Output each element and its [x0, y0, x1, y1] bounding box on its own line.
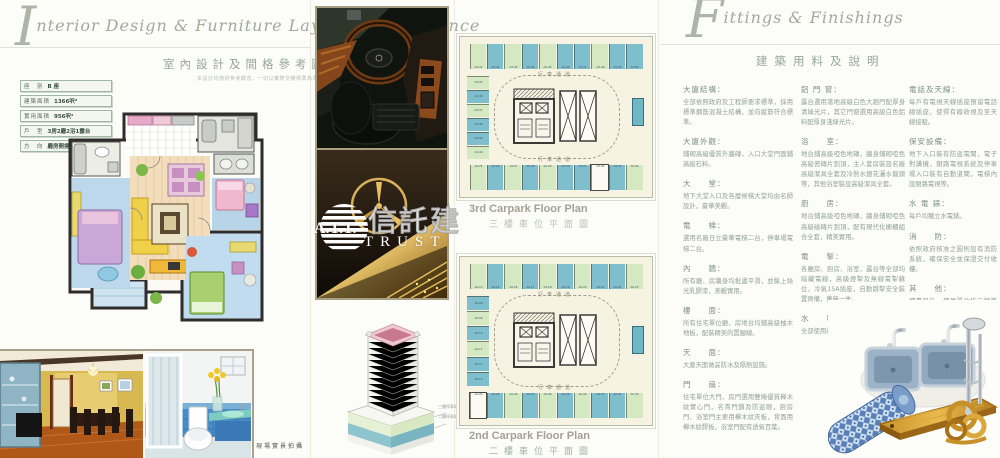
stall-label: A3-39 [474, 137, 482, 140]
car-interior-photo [317, 8, 447, 148]
stall-label: A2-12 [474, 363, 482, 366]
stall-label: A3-34 [631, 165, 639, 168]
car-photo-frame [315, 6, 449, 300]
plan2-caption-en: 2nd Carpark Floor Plan [469, 430, 590, 442]
stall-label: A3-50 [631, 66, 639, 69]
stall-label: A2-08 [474, 302, 482, 305]
stall-label: A2-27 [526, 393, 534, 396]
right-panel-title-en: Fittings & Finishings [686, 8, 904, 27]
stall-label: A3-28 [526, 165, 534, 168]
section-body: 依照政府核准之圖則設有消防系統，確保安全並保證交付收樓。 [909, 245, 997, 275]
parking-stall: A2-33 [626, 393, 642, 418]
section-heading: 電話及天線： [909, 84, 997, 95]
tower-label-3f: 三樓停車場 [438, 404, 458, 410]
spec-label: 戶 型 [24, 127, 44, 135]
parking-stall: A2-15 [487, 264, 503, 289]
parking-stall: A2-29 [557, 393, 573, 418]
parking-stall: A2-16 [504, 264, 520, 289]
spec-label: 建築面積 [24, 97, 50, 105]
stall-label: A3-35 [474, 81, 482, 84]
section-body: 住宅單位大門、房門選用雙掩優質櫸木紋實心門，名貴門鎖及防盜眼，廚房門、浴室門主要… [683, 393, 793, 433]
parking-stall: A3-28 [522, 165, 538, 190]
stall-label: A2-30 [579, 393, 587, 396]
title-rest: ittings & Finishings [723, 8, 903, 27]
stall-label: A2-24 [474, 393, 482, 396]
living-room-photo [0, 351, 143, 458]
kitchen [126, 116, 196, 156]
stall-label: A3-49 [613, 66, 621, 69]
stall-label: A3-31 [579, 165, 587, 168]
stall-label: A3-48 [596, 66, 604, 69]
section-heading: 內 牆： [683, 263, 793, 274]
parking-stall: A3-42 [487, 44, 503, 69]
master-bedroom [72, 178, 130, 288]
parking-stall: A2-12 [467, 357, 489, 371]
lane-label: 行車通道 [460, 384, 652, 391]
section-heading: 水 電 錶： [909, 198, 997, 209]
stall-label: A3-27 [509, 165, 517, 168]
fittings-column-1: 大廈結構：全部依照政府及工程師要求標準，採用標準鋼筋混凝土結構，並向縱筋符合標準… [683, 84, 793, 433]
section-heading: 電 梯： [683, 220, 793, 231]
stall-label: A2-17 [526, 286, 534, 289]
carpark-plan-3: A3-41A3-42A3-43A3-44A3-45A3-46A3-47A3-48… [459, 36, 653, 198]
stall-row-bottom: A3-25A3-26A3-27A3-28A3-29A3-30A3-31A3-32… [469, 165, 643, 190]
parking-stall: A3-43 [504, 44, 520, 69]
stall-row-top: A2-14A2-15A2-16A2-17A2-18A2-19A2-20A2-21… [469, 264, 643, 289]
parking-stall: A2-27 [522, 393, 538, 418]
brochure-page: Interior Design & Furniture Layout for R… [0, 0, 1000, 458]
stall-label: A3-46 [561, 66, 569, 69]
section-body: 各廳房、廚房、浴室、露台等全部均暗藏電線，高級燈掣及無線電掣蘇位，冷氣15A插座… [801, 265, 905, 305]
stall-label: A3-45 [544, 66, 552, 69]
parking-stall: A3-25 [470, 165, 486, 190]
parking-stall: A3-50 [626, 44, 642, 69]
parking-stall: A2-19 [557, 264, 573, 289]
lane-label: 行車通道 [460, 156, 652, 163]
section-heading: 其 他： [909, 283, 997, 294]
stall-label: A2-25 [492, 393, 500, 396]
parking-stall: A2-25 [487, 393, 503, 418]
stall-label: A2-22 [613, 286, 621, 289]
fold-seam [658, 0, 659, 458]
left-panel-title-zh: 室內設計及間格參考圖 [163, 56, 328, 72]
spec-value: 1366呎² [54, 97, 77, 105]
parking-stall: A3-33 [609, 165, 625, 190]
spec-label: 方 向 [24, 142, 44, 150]
parking-stall: A2-21 [591, 264, 607, 289]
section-heading: 大廈結構： [683, 84, 793, 95]
left-disclaimer: 本設計均僅供參考概念，一切以實際交樓標準為準。 [197, 75, 324, 82]
stall-label: A2-16 [509, 286, 517, 289]
stall-label: A2-31 [596, 393, 604, 396]
section-body: 所有住宅單位廳、房地台均鋪高級柚木地板，配裝精美的置腳線。 [683, 319, 793, 339]
stall-label: A2-14 [474, 286, 482, 289]
section-body: 大廈天面做妥防水及隔熱設施。 [683, 361, 793, 371]
stall-label: A2-33 [631, 393, 639, 396]
lane-label: 行車通道 [460, 291, 652, 298]
fixtures-montage-photo [828, 300, 1000, 458]
stall-label: A3-30 [561, 165, 569, 168]
stall-label: A3-43 [509, 66, 517, 69]
section-heading: 電 掣： [801, 251, 905, 262]
section-heading: 消 防： [909, 231, 997, 242]
parking-stall: A2-30 [574, 393, 590, 418]
stall-label: A3-47 [579, 66, 587, 69]
site-photos [0, 349, 254, 458]
section-body: 地下大堂入口及各層候梯大堂均由名師設計，豪華美觀。 [683, 192, 793, 212]
parking-stall: A3-31 [574, 165, 590, 190]
parking-stall: A3-30 [557, 165, 573, 190]
plan3-caption-en: 3rd Carpark Floor Plan [469, 203, 588, 215]
section-heading: 大廈外觀： [683, 136, 793, 147]
fold-seam [454, 0, 455, 458]
stall-label: A3-37 [474, 109, 482, 112]
parking-stall: A3-32 [591, 165, 607, 190]
parking-stall: A3-27 [504, 165, 520, 190]
spec-row: 座 別B 座 [20, 80, 112, 92]
parking-stall: A3-45 [539, 44, 555, 69]
section-body: 露台選用落地高級白色大趟門配厚身清綠光片，其它門窗選用高級白色鋁料配厚身淺綠光片… [801, 98, 905, 128]
section-body: 每戶有電視天線插座預留電話線插座，使得有線收視及至天線接駁。 [909, 98, 997, 128]
stall-label: A2-28 [544, 393, 552, 396]
mercedes-star-photo [317, 150, 447, 298]
core-structure [512, 87, 600, 147]
apartment-floor-plan [64, 112, 270, 330]
right-title-rule [660, 44, 1000, 45]
stall-row-bottom: A2-24A2-25A2-26A2-27A2-28A2-29A2-30A2-31… [469, 393, 643, 418]
parking-stall: A2-32 [609, 393, 625, 418]
bedroom-2 [212, 178, 260, 230]
double-sink [866, 344, 974, 390]
stall-label: A3-41 [474, 66, 482, 69]
parking-stall: A3-49 [609, 44, 625, 69]
parking-stall: A3-41 [470, 44, 486, 69]
stall-label: A3-26 [492, 165, 500, 168]
stall-label: A2-09 [474, 317, 482, 320]
spec-row: 建築面積1366呎² [20, 95, 112, 107]
title-initial: F [686, 0, 723, 50]
stall-label: A2-15 [492, 286, 500, 289]
stall-label: A2-32 [613, 393, 621, 396]
section-heading: 天 面： [683, 347, 793, 358]
spec-label: 實用面積 [24, 112, 50, 120]
stall-label: A2-19 [561, 286, 569, 289]
stall-label: A3-25 [474, 165, 482, 168]
section-body: 地下入口裝有防盜電閘，電子對講機，閉路電視系統及停車場入口裝有自動道閘，電梯內設… [909, 150, 997, 190]
parking-stall: A3-36 [467, 90, 489, 103]
bathroom-photo [145, 351, 251, 458]
stall-label: A3-36 [474, 95, 482, 98]
building-isometric [336, 320, 454, 456]
parking-stall: A2-14 [470, 264, 486, 289]
parking-stall: A3-29 [539, 165, 555, 190]
stall-label: A2-13 [474, 378, 482, 381]
parking-stall: A2-20 [574, 264, 590, 289]
stall-label: A3-38 [474, 123, 482, 126]
parking-stall: A2-11 [467, 341, 489, 355]
stall-label: A2-23 [631, 286, 639, 289]
parking-stall: A3-37 [467, 104, 489, 117]
stall-label: A3-42 [492, 66, 500, 69]
parking-stall: A2-24 [470, 393, 486, 418]
section-body: 每戶均獨立水電錶。 [909, 212, 997, 222]
stall-label: A3-44 [526, 66, 534, 69]
section-heading: 樓 面： [683, 305, 793, 316]
parking-stall: A2-28 [539, 393, 555, 418]
parking-stall: A3-44 [522, 44, 538, 69]
core-structure [512, 311, 600, 371]
parking-stall: A2-10 [467, 326, 489, 340]
plan3-caption-zh: 三樓車位平面圖 [489, 217, 594, 230]
parking-stall: A3-38 [467, 118, 489, 131]
section-heading: 廚 房： [801, 198, 905, 209]
section-heading: 大 堂： [683, 178, 793, 189]
section-body: 鋪砌高級優質外牆磚，入口大堂門面鋪高級石料。 [683, 150, 793, 170]
right-panel-title-zh: 建築用料及說明 [756, 53, 886, 69]
left-title-rule [0, 47, 310, 48]
stall-label: A3-33 [613, 165, 621, 168]
stall-row-top: A3-41A3-42A3-43A3-44A3-45A3-46A3-47A3-48… [469, 44, 643, 69]
plan2-caption-zh: 二樓車位平面圖 [489, 444, 594, 457]
stall-label: A2-11 [474, 348, 482, 351]
stall-label: A3-40 [474, 151, 482, 154]
stall-label: A3-29 [544, 165, 552, 168]
section-heading: 鋁 門 窗： [801, 84, 905, 95]
stall-col-left: A2-08A2-09A2-10A2-11A2-12A2-13 [467, 295, 489, 387]
parking-stall: A3-34 [626, 165, 642, 190]
spec-value: B 座 [48, 82, 60, 90]
section-heading: 保安設備： [909, 136, 997, 147]
parking-stall: A3-48 [591, 44, 607, 69]
stall-label: A2-18 [544, 286, 552, 289]
parking-stall: A2-17 [522, 264, 538, 289]
carpark-plan-2: A2-14A2-15A2-16A2-17A2-18A2-19A2-20A2-21… [459, 256, 653, 426]
stall-label: A3-32 [596, 165, 604, 168]
parking-stall: A2-22 [609, 264, 625, 289]
parking-stall: A2-23 [626, 264, 642, 289]
stall-col-left: A3-35A3-36A3-37A3-38A3-39A3-40 [467, 75, 489, 159]
section-body: 地台鋪高級啞色地磚，牆身鋪砌啞色高級瓷磚片到頂，主人套房裝設名廠高級潔具全套及冷… [801, 150, 905, 190]
fittings-column-3: 電話及天線：每戶有電視天線插座預留電話線插座，使得有線收視及至天線接駁。保安設備… [909, 84, 997, 317]
lane-label: 行車通道 [460, 71, 652, 78]
stall-label: A2-20 [579, 286, 587, 289]
section-body: 地台鋪高級啞色地磚，牆身鋪砌啞色高級磁磚片到頂，配有現代化櫥櫃組合全套，精美實用… [801, 212, 905, 242]
parking-stall: A3-47 [574, 44, 590, 69]
section-body: 所有廳、房牆身均批盪平滑，並髹上絲光乳膠漆，美觀實用。 [683, 277, 793, 297]
parking-stall: A2-18 [539, 264, 555, 289]
section-heading: 門 扇： [683, 379, 793, 390]
parking-stall: A3-39 [467, 132, 489, 145]
section-heading: 浴 室： [801, 136, 905, 147]
bedroom-3 [186, 236, 260, 318]
stall-label: A2-21 [596, 286, 604, 289]
bathroom-left [72, 142, 120, 176]
stall-label: A2-10 [474, 332, 482, 335]
title-initial: I [15, 0, 36, 58]
parking-stall: A3-46 [557, 44, 573, 69]
ramp-marker [633, 99, 643, 125]
tower-label-2f: 二樓停車場 [438, 414, 458, 420]
spec-label: 座 別 [24, 82, 44, 90]
parking-stall: A3-26 [487, 165, 503, 190]
ramp-marker [633, 327, 643, 353]
stall-label: A2-29 [561, 393, 569, 396]
section-body: 選用名廠日立豪華電梯二台，停車場電梯二台。 [683, 234, 793, 254]
parking-stall: A2-31 [591, 393, 607, 418]
stall-label: A2-26 [509, 393, 517, 396]
photo-caption: 現場實景拍攝 [256, 441, 304, 450]
section-body: 全部依照政府及工程師要求標準，採用標準鋼筋混凝土結構，並向縱筋符合標準。 [683, 98, 793, 128]
parking-stall: A2-09 [467, 311, 489, 325]
parking-stall: A2-26 [504, 393, 520, 418]
fittings-column-2: 鋁 門 窗：露台選用落地高級白色大趟門配厚身清綠光片，其它門窗選用高級白色鋁料配… [801, 84, 905, 337]
